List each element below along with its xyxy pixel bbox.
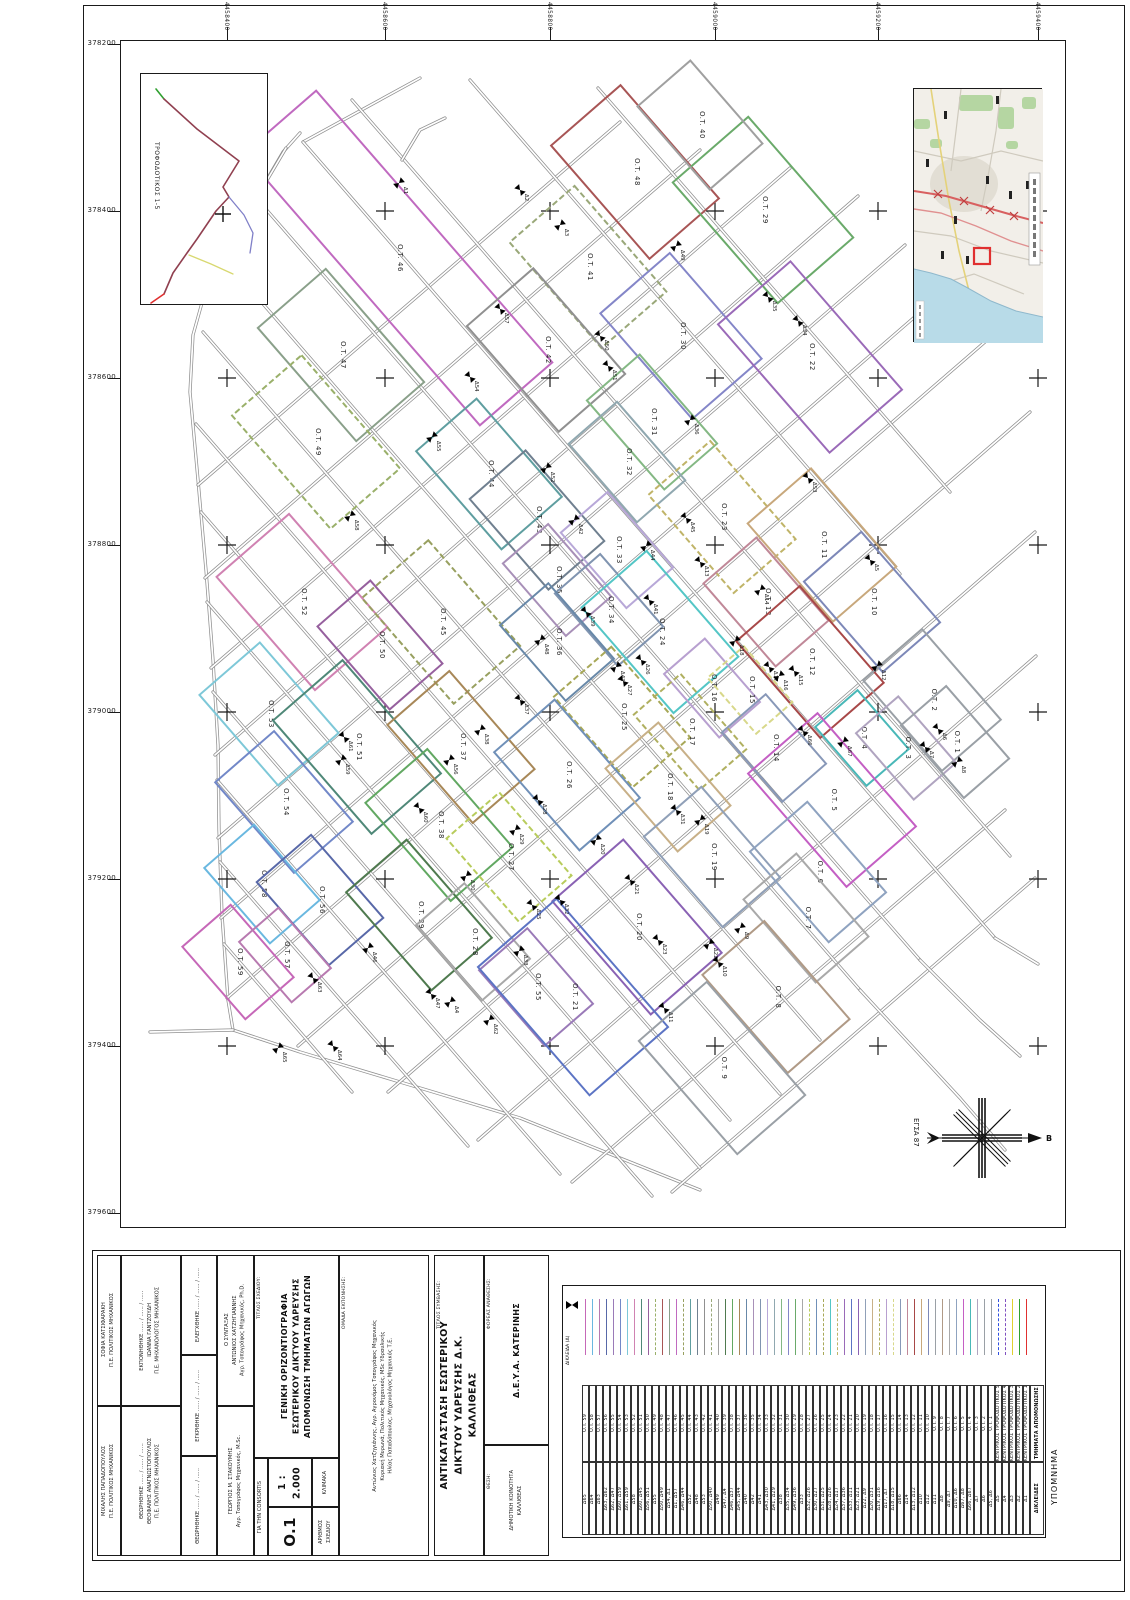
legend-valves-value: Δ8 xyxy=(940,1495,945,1502)
legend-swatch xyxy=(1002,1295,1009,1365)
valve-label: Δ63 xyxy=(316,982,322,993)
legend-section-label: O.T. 20 xyxy=(856,1414,861,1432)
legend-valves-value: Δ62, Δ47 xyxy=(611,1487,616,1510)
title-block-panel: ΚΛΙΜΑΚΑ xyxy=(312,1458,339,1507)
block-label: O.T. 46 xyxy=(396,244,404,272)
valve-label: Δ37 xyxy=(523,704,529,715)
legend-swatch xyxy=(694,1295,701,1365)
easting-tick xyxy=(1038,27,1039,40)
legend-valves-value: Δ6 xyxy=(982,1495,987,1502)
legend-swatch xyxy=(834,1295,841,1365)
title-block-text: ΔΗΜΟΤΙΚΗ ΚΟΙΝΟΤΗΤΑΚΑΛΛΙΘΕΑΣ xyxy=(509,1470,525,1530)
grid-cross xyxy=(541,703,559,721)
valve-label: Δ23 xyxy=(661,944,667,955)
legend-column: O.T. 8Δ8 xyxy=(939,1385,946,1535)
legend-column: O.T. 58Δ64 xyxy=(589,1385,596,1535)
legend-valves-value: Δ1 xyxy=(1024,1495,1029,1502)
block-label: O.T. 23 xyxy=(720,503,728,531)
block-label: O.T. 56 xyxy=(318,886,326,914)
legend-section-label: O.T. 51 xyxy=(639,1414,644,1432)
title-block-text: ΑΝΤΙΚΑΤΑΣΤΑΣΗ ΕΣΩΤΕΡΙΚΟΥΔΙΚΤΥΟΥ ΥΔΡΕΥΣΗΣ… xyxy=(438,1321,481,1489)
legend-section-label: O.T. 50 xyxy=(646,1414,651,1432)
legend-swatch xyxy=(855,1295,862,1365)
legend-section-label: O.T. 46 xyxy=(674,1414,679,1432)
locator-attribution-glyph xyxy=(919,333,921,337)
grid-cross xyxy=(1029,703,1047,721)
agency-header: ΦΟΡΕΑΣ ΑΝΑΘΕΣΗΣ: xyxy=(487,1259,492,1329)
legend-swatch xyxy=(743,1295,750,1365)
title-block-panel: ΕΛΕΓΧΘΗΚΕ …… / …… / …… xyxy=(181,1255,217,1355)
legend-swatch xyxy=(876,1295,883,1365)
legend-valves-value: Δ49, Δ36 xyxy=(793,1487,798,1510)
easting-label: 4459000 xyxy=(711,2,717,28)
grid-cross xyxy=(541,202,559,220)
grid-cross xyxy=(541,536,559,554)
legend-valves-value: Δ31, Δ25 xyxy=(821,1487,826,1510)
legend-section-label: O.T. 33 xyxy=(765,1414,770,1432)
block-label: O.T. 29 xyxy=(761,196,769,224)
block-label: O.T. 36 xyxy=(555,628,563,656)
northing-label: 379000 xyxy=(86,707,116,715)
grid-cross xyxy=(869,202,887,220)
block-label: O.T. 12 xyxy=(808,648,816,676)
valve-label: Δ42 xyxy=(577,524,583,535)
legend-swatch xyxy=(736,1295,743,1365)
valve-label: Δ19 xyxy=(703,824,709,835)
valve-label: Δ39 xyxy=(589,616,595,627)
legend-valves-value: Δ28, Δ26 xyxy=(828,1487,833,1510)
legend-column: O.T. 37Δ45, Δ44 xyxy=(736,1385,743,1535)
legend-column: O.T. 50Δ56, Δ51 xyxy=(645,1385,652,1535)
legend-column: O.T. 1Δ5, Δ6 xyxy=(988,1385,995,1535)
legend-column: O.T. 34Δ41 xyxy=(757,1385,764,1535)
legend-column: O.T. 41Δ50, Δ40 xyxy=(708,1385,715,1535)
grid-cross xyxy=(218,369,236,387)
block-label: O.T. 22 xyxy=(808,343,816,371)
locator-attribution-glyph xyxy=(919,305,921,309)
street-inner xyxy=(220,862,468,1146)
title-block-text: ΓΕΝΙΚΗ ΟΡΙΖΟΝΤΙΟΓΡΑΦΙΑΕΣΩΤΕΡΙΚΟΥ ΔΙΚΤΥΟΥ… xyxy=(279,1275,314,1438)
block-label: O.T. 1 xyxy=(953,731,961,754)
valve-label: Δ18 xyxy=(738,645,744,656)
northing-label: 378200 xyxy=(86,39,116,47)
block-label: O.T. 51 xyxy=(355,733,363,761)
title-block-text: ΕΚΠΟΝΗΘΗΚΕ …… / …… / ……ΙΩΑΝΝΑ ΓΑΝΤΖΟΥΔΗΠ… xyxy=(139,1287,162,1374)
feeder-diagram-inset: ΤΡΟΦΟΔΟΤΙΚΟΣ 1-5 xyxy=(140,73,268,305)
legend-valves-value: Δ46, Δ37 xyxy=(730,1487,735,1510)
title-block-text: O.1 xyxy=(279,1517,302,1547)
legend-swatch xyxy=(925,1295,932,1365)
legend-column: O.T. 54Δ60, Δ59 xyxy=(617,1385,624,1535)
valve-label: Δ12 xyxy=(880,670,886,681)
legend-swatch xyxy=(827,1295,834,1365)
block-label: O.T. 47 xyxy=(339,341,347,369)
legend-swatch xyxy=(617,1295,624,1365)
legend-swatch xyxy=(638,1295,645,1365)
street-inner xyxy=(995,938,1038,964)
legend-column: O.T. 39Δ47, Δ4 xyxy=(722,1385,729,1535)
legend-column: O.T. 5Δ67, Δ8 xyxy=(960,1385,967,1535)
block-label: O.T. 7 xyxy=(804,907,812,930)
legend-valves-value: Δ19, Δ16 xyxy=(877,1487,882,1510)
valve-label: Δ13 xyxy=(703,566,709,577)
valve-label: Δ64 xyxy=(336,1050,342,1061)
valve-label: Δ62 xyxy=(492,1024,498,1035)
grid-cross xyxy=(706,369,724,387)
legend-swatch xyxy=(666,1295,673,1365)
legend-column: O.T. 36Δ40 xyxy=(743,1385,750,1535)
valve-label: Δ66 xyxy=(806,735,812,746)
locator-map xyxy=(914,89,1043,343)
legend-section-label: O.T. 31 xyxy=(779,1414,784,1432)
legend-section-label: O.T. 2 xyxy=(982,1416,987,1431)
block-label: O.T. 41 xyxy=(586,253,594,281)
block-label: O.T. 11 xyxy=(820,531,828,559)
valve-label: Δ21 xyxy=(633,884,639,895)
team-header: ΟΜΑΔΑ ΕΚΠΟΝΗΣΗΣ: xyxy=(342,1259,347,1329)
legend-section-label: O.T. 47 xyxy=(667,1414,672,1432)
block-label: O.T. 17 xyxy=(688,718,696,746)
valve-label: Δ55 xyxy=(435,441,441,452)
valve-symbol-icon xyxy=(565,1298,579,1312)
legend-section-label: O.T. 37 xyxy=(737,1414,742,1432)
locator-green-patch xyxy=(914,119,930,129)
grid-cross xyxy=(1029,870,1047,888)
legend-swatch xyxy=(778,1295,785,1365)
legend-column: O.T. 44Δ52 xyxy=(687,1385,694,1535)
valve-label: Δ65 xyxy=(281,1052,287,1063)
title-block-panel: ΓΙΑ ΤΗΝ CONSORTIS xyxy=(254,1458,268,1556)
legend-section-label: O.T. 44 xyxy=(688,1414,693,1432)
legend-swatch xyxy=(631,1295,638,1365)
legend-swatch xyxy=(981,1295,988,1365)
block-label: O.T. 31 xyxy=(650,408,658,436)
legend-section-label: O.T. 1 xyxy=(989,1416,994,1431)
title-block-panel: ΣΟΦΙΑ ΚΑΤΣΙΦΑΡΑΚΗΠ.Ε. ΠΟΛΙΤΙΚΟΣ ΜΗΧΑΝΙΚΟ… xyxy=(97,1255,121,1406)
valve-label: Δ32 xyxy=(563,904,569,915)
legend-column: O.T. 6Δ10, Δ6 xyxy=(953,1385,960,1535)
valve-label: Δ46 xyxy=(371,952,377,963)
feeder-diagram xyxy=(141,74,269,306)
legend-section-label: O.T. 28 xyxy=(800,1414,805,1432)
legend-section-label: ΚΕΝΤΡΙΚΟΣ ΤΡΟΦΟΔΟΤΙΚΟΣ 4 xyxy=(1003,1385,1008,1461)
legend-section-label: O.T. 21 xyxy=(849,1414,854,1432)
northing-label: 379200 xyxy=(86,874,116,882)
legend-section-label: O.T. 29 xyxy=(793,1414,798,1432)
legend-swatch xyxy=(659,1295,666,1365)
title-block-text: ΚΛΙΜΑΚΑ xyxy=(322,1471,330,1494)
legend-section-label: O.T. 45 xyxy=(681,1414,686,1432)
legend-valves-value: Δ5 xyxy=(996,1495,1001,1502)
title-block-panel: ΘΕΩΡΗΘΗΚΕ …… / …… / …… xyxy=(181,1456,217,1556)
valve-label: Δ30 xyxy=(469,880,475,891)
street-casing xyxy=(402,118,445,160)
legend-valves-value: Δ53 xyxy=(702,1494,707,1504)
legend-swatch xyxy=(841,1295,848,1365)
legend-column: O.T. 51Δ60, Δ45 xyxy=(638,1385,645,1535)
northing-tick xyxy=(108,211,120,212)
legend-column: O.T. 2Δ6 xyxy=(981,1385,988,1535)
title-block-text: ΕΛΕΓΧΘΗΚΕ …… / …… / …… xyxy=(195,1268,203,1342)
valve-label: Δ54 xyxy=(473,381,479,392)
legend-section-label: O.T. 13 xyxy=(905,1414,910,1432)
legend-column: O.T. 29Δ49, Δ36 xyxy=(792,1385,799,1535)
legend-valves-value: Δ63 xyxy=(597,1494,602,1504)
locator-symbol xyxy=(926,159,929,167)
legend-column: O.T. 14Δ66 xyxy=(897,1385,904,1535)
legend-section-label: O.T. 8 xyxy=(940,1416,945,1431)
valve-label: Δ29 xyxy=(518,834,524,845)
valve-label: Δ50 xyxy=(603,340,609,351)
legend-column: O.T. 27Δ32, Δ26 xyxy=(806,1385,813,1535)
legend-column: O.T. 46Δ1, Δ57 xyxy=(673,1385,680,1535)
legend-section-label: O.T. 48 xyxy=(660,1414,665,1432)
legend-swatch xyxy=(904,1295,911,1365)
legend-valves-value: Δ7 xyxy=(975,1495,980,1502)
feeder-pipe xyxy=(189,255,233,274)
legend-column: O.T. 38Δ46, Δ37 xyxy=(729,1385,736,1535)
legend-column: O.T. 15Δ18, Δ15 xyxy=(890,1385,897,1535)
legend-swatch xyxy=(918,1295,925,1365)
valve-label: Δ52 xyxy=(549,472,555,483)
legend-section-header: ΤΜΗΜΑΤΑ ΑΠΟΜΟΝΩΣΗΣ xyxy=(1035,1387,1040,1459)
legend-valves-value: Δ60, Δ45 xyxy=(639,1487,644,1510)
easting-label: 4459200 xyxy=(874,2,880,28)
legend-column: O.T. 26Δ30, Δ27 xyxy=(813,1385,820,1535)
legend-swatch xyxy=(792,1295,799,1365)
legend-column: ΚΕΝΤΡΙΚΟΣ ΤΡΟΦΟΔΟΤΙΚΟΣ 2Δ2 xyxy=(1016,1385,1023,1535)
legend-swatch xyxy=(988,1295,995,1365)
title-block-panel: 1 : 2.000 xyxy=(268,1458,312,1507)
legend-section-label: O.T. 27 xyxy=(807,1414,812,1432)
legend-section-label: O.T. 22 xyxy=(842,1414,847,1432)
legend-swatch xyxy=(974,1295,981,1365)
legend-section-label: O.T. 7 xyxy=(947,1416,952,1431)
locator-green-patch xyxy=(998,107,1014,129)
legend-swatch xyxy=(799,1295,806,1365)
northing-tick xyxy=(108,1046,120,1047)
legend-valves-value: Δ13, Δ12 xyxy=(912,1487,917,1510)
grid-cross xyxy=(1029,536,1047,554)
legend-section-label: O.T. 58 xyxy=(590,1414,595,1432)
legend-title: ΥΠΟΜΝΗΜΑ xyxy=(1050,1395,1059,1505)
northing-label: 379600 xyxy=(86,1208,116,1216)
valve-label: Δ5 xyxy=(873,564,879,571)
legend-section-label: ΚΕΝΤΡΙΚΟΣ ΤΡΟΦΟΔΟΤΙΚΟΣ 3 xyxy=(1010,1385,1015,1461)
locator-attribution-glyph xyxy=(919,312,921,316)
legend-column: O.T. 42Δ53 xyxy=(701,1385,708,1535)
legend-swatch xyxy=(645,1295,652,1365)
legend-swatch xyxy=(911,1295,918,1365)
legend-swatch xyxy=(771,1295,778,1365)
legend-swatch xyxy=(722,1295,729,1365)
legend-column: O.T. 53Δ61, Δ59 xyxy=(624,1385,631,1535)
legend-column: ΚΕΝΤΡΙΚΟΣ ΤΡΟΦΟΔΟΤΙΚΟΣ 5Δ5 xyxy=(995,1385,1002,1535)
legend-column: O.T. 30Δ35, Δ34 xyxy=(785,1385,792,1535)
block-label: O.T. 54 xyxy=(282,788,290,816)
legend-section-label: O.T. 11 xyxy=(919,1414,924,1432)
legend-valves-value: Δ10, Δ6 xyxy=(954,1488,959,1508)
legend-column: O.T. 12Δ13, Δ12 xyxy=(911,1385,918,1535)
locator-symbol xyxy=(1026,181,1029,189)
legend-section-label: O.T. 14 xyxy=(898,1414,903,1432)
easting-tick xyxy=(878,27,879,40)
block-label: O.T. 30 xyxy=(679,322,687,350)
legend-section-label: O.T. 52 xyxy=(632,1414,637,1432)
block-label: O.T. 37 xyxy=(459,733,467,761)
legend-swatch xyxy=(995,1295,1002,1365)
legend-swatch xyxy=(897,1295,904,1365)
legend-column: O.T. 59Δ65 xyxy=(582,1385,589,1535)
legend-swatch xyxy=(946,1295,953,1365)
legend-valves-value: Δ32, Δ26 xyxy=(807,1487,812,1510)
grid-cross xyxy=(376,536,394,554)
legend-swatch xyxy=(729,1295,736,1365)
valve-label: Δ51 xyxy=(611,370,617,381)
legend-section-label: O.T. 19 xyxy=(863,1414,868,1432)
locator-green-patch xyxy=(1022,97,1036,109)
legend-column: O.T. 17Δ19, Δ16 xyxy=(876,1385,883,1535)
block-label: O.T. 48 xyxy=(633,158,641,186)
block-label: O.T. 27 xyxy=(507,843,515,871)
block-label: O.T. 3 xyxy=(904,737,912,760)
legend-column: O.T. 9Δ11 xyxy=(932,1385,939,1535)
legend-column: O.T. 19Δ22, Δ9 xyxy=(862,1385,869,1535)
legend-swatch xyxy=(701,1295,708,1365)
block-label: O.T. 24 xyxy=(658,618,666,646)
feeder-pipe xyxy=(156,89,164,99)
legend-valves-value: Δ20, Δ31 xyxy=(870,1487,875,1510)
grid-cross xyxy=(706,870,724,888)
locator-caption-glyph xyxy=(1033,224,1036,230)
valve-label: Δ56 xyxy=(452,764,458,775)
locator-symbol xyxy=(944,111,947,119)
legend-column: O.T. 55Δ62, Δ47 xyxy=(610,1385,617,1535)
north-compass: Β xyxy=(895,1085,1065,1195)
title-block-text: ΜΙΧΑΛΗΣ ΠΑΠΑΔΟΠΟΥΛΟΣΠ.Ε. ΠΟΛΙΤΙΚΟΣ ΜΗΧΑΝ… xyxy=(101,1444,117,1518)
grid-cross xyxy=(706,536,724,554)
legend-section-label: O.T. 56 xyxy=(604,1414,609,1432)
grid-cross xyxy=(376,1037,394,1055)
valve-label: Δ34 xyxy=(801,325,807,336)
northing-tick xyxy=(108,545,120,546)
legend-table: O.T. 59Δ65O.T. 58Δ64O.T. 57Δ63O.T. 56Δ63… xyxy=(582,1385,1030,1535)
legend-column: O.T. 4Δ66, Δ67 xyxy=(967,1385,974,1535)
legend-swatch xyxy=(862,1295,869,1365)
legend-section-label: O.T. 23 xyxy=(835,1414,840,1432)
valve-label: Δ9 xyxy=(743,932,749,940)
easting-tick xyxy=(385,27,386,40)
legend-valves-value: Δ30, Δ27 xyxy=(814,1487,819,1510)
block-label: O.T. 42 xyxy=(544,336,552,364)
legend-valves-value: Δ38 xyxy=(779,1494,784,1504)
valve-label: Δ47 xyxy=(434,998,440,1009)
block-label: O.T. 25 xyxy=(620,703,628,731)
northing-tick xyxy=(108,879,120,880)
drawing-sheet: 4458400445860044588004459000445920044594… xyxy=(0,0,1130,1600)
legend-section-label: O.T. 59 xyxy=(583,1414,588,1432)
easting-tick xyxy=(227,27,228,40)
legend-swatch xyxy=(1009,1295,1016,1365)
title-block-panel: ΑΡΙΘΜΟΣ ΣΧΕΔΙΟΥ xyxy=(312,1507,339,1556)
legend-section-label: O.T. 36 xyxy=(744,1414,749,1432)
block-label: O.T. 8 xyxy=(774,986,782,1009)
valve-label: Δ10 xyxy=(721,966,727,977)
title-block-text: ΑΡΙΘΜΟΣ ΣΧΕΔΙΟΥ xyxy=(318,1508,334,1555)
legend-swatch xyxy=(960,1295,967,1365)
legend-section-label: ΚΕΝΤΡΙΚΟΣ ΤΡΟΦΟΔΟΤΙΚΟΣ 2 xyxy=(1017,1385,1022,1461)
locator-symbol xyxy=(941,251,944,259)
title-block-text: ΓΙΑ ΤΗΝ CONSORTIS xyxy=(257,1481,265,1533)
valve-symbol-label: ΔΙΚΛΕΙΔΑ (Δ) xyxy=(566,1313,571,1365)
block-label: O.T. 20 xyxy=(635,913,643,941)
title-block-panel: ΕΚΠΟΝΗΘΗΚΕ …… / …… / ……ΙΩΑΝΝΑ ΓΑΝΤΖΟΥΔΗΠ… xyxy=(121,1255,181,1406)
valve-label: Δ6 xyxy=(941,733,947,741)
legend-valves-value: Δ60, Δ59 xyxy=(618,1487,623,1510)
legend-swatch-row xyxy=(582,1295,1030,1365)
title-block-panel: ΔΗΜΟΤΙΚΗ ΚΟΙΝΟΤΗΤΑΚΑΛΛΙΘΕΑΣΘΕΣΗ: xyxy=(484,1445,549,1556)
legend-column: O.T. 25Δ31, Δ25 xyxy=(820,1385,827,1535)
block-label: O.T. 57 xyxy=(283,941,291,969)
northing-label: 379400 xyxy=(86,1041,116,1049)
legend-section-label: O.T. 38 xyxy=(730,1414,735,1432)
northing-tick xyxy=(108,712,120,713)
legend-valves-value: Δ64 xyxy=(590,1494,595,1504)
valve-label: Δ11 xyxy=(667,1012,673,1023)
contract-header: ΤΙΤΛΟΣ ΣΥΜΒΑΣΗΣ: xyxy=(437,1259,442,1329)
block-label: O.T. 55 xyxy=(534,973,542,1001)
valve-label: Δ49 xyxy=(679,250,685,261)
legend-valves-value: Δ37, Δ36 xyxy=(842,1487,847,1510)
block-label: O.T. 45 xyxy=(439,608,447,636)
legend-swatch xyxy=(750,1295,757,1365)
feeder-pipe xyxy=(151,294,164,303)
legend-valves-value: Δ50, Δ40 xyxy=(709,1487,714,1510)
legend-valves-value: Δ61, Δ59 xyxy=(625,1487,630,1510)
block-label: O.T. 21 xyxy=(571,983,579,1011)
legend-valves-value: Δ33, Δ11 xyxy=(849,1487,854,1510)
compass-arrowhead xyxy=(1028,1133,1042,1143)
legend-valves-value: Δ65 xyxy=(583,1494,588,1504)
block-label: O.T. 5 xyxy=(830,789,838,812)
legend-valves-value: Δ63, Δ62 xyxy=(604,1487,609,1510)
legend-column: O.T. 35Δ42 xyxy=(750,1385,757,1535)
valve-label: Δ20 xyxy=(599,844,605,855)
legend-column: O.T. 20Δ23, Δ21 xyxy=(855,1385,862,1535)
locator-green-patch xyxy=(1006,141,1018,149)
legend-column: ΚΕΝΤΡΙΚΟΣ ΤΡΟΦΟΔΟΤΙΚΟΣ 4Δ4 xyxy=(1002,1385,1009,1535)
legend-valves-value: Δ18, Δ15 xyxy=(891,1487,896,1510)
legend-valves-value: Δ5, Δ6 xyxy=(989,1490,994,1507)
block-label: O.T. 53 xyxy=(267,700,275,728)
legend-section-label: O.T. 43 xyxy=(695,1414,700,1432)
legend-section-label: O.T. 5 xyxy=(961,1416,966,1431)
legend-swatch xyxy=(624,1295,631,1365)
legend-swatch xyxy=(939,1295,946,1365)
legend-column: O.T. 31Δ38 xyxy=(778,1385,785,1535)
compass-north-letter: Β xyxy=(1046,1134,1052,1143)
legend-valves-value: Δ23, Δ21 xyxy=(856,1487,861,1510)
valve-label: Δ45 xyxy=(689,522,695,533)
valve-label: Δ26 xyxy=(644,664,650,675)
block-label: O.T. 49 xyxy=(314,428,322,456)
valve-label: Δ59 xyxy=(344,764,350,775)
legend-valves-value: Δ66, Δ67 xyxy=(968,1487,973,1510)
street-inner xyxy=(402,118,445,160)
northing-label: 378600 xyxy=(86,373,116,381)
feeder-pipe xyxy=(229,197,253,253)
legend-swatch xyxy=(1023,1295,1030,1365)
